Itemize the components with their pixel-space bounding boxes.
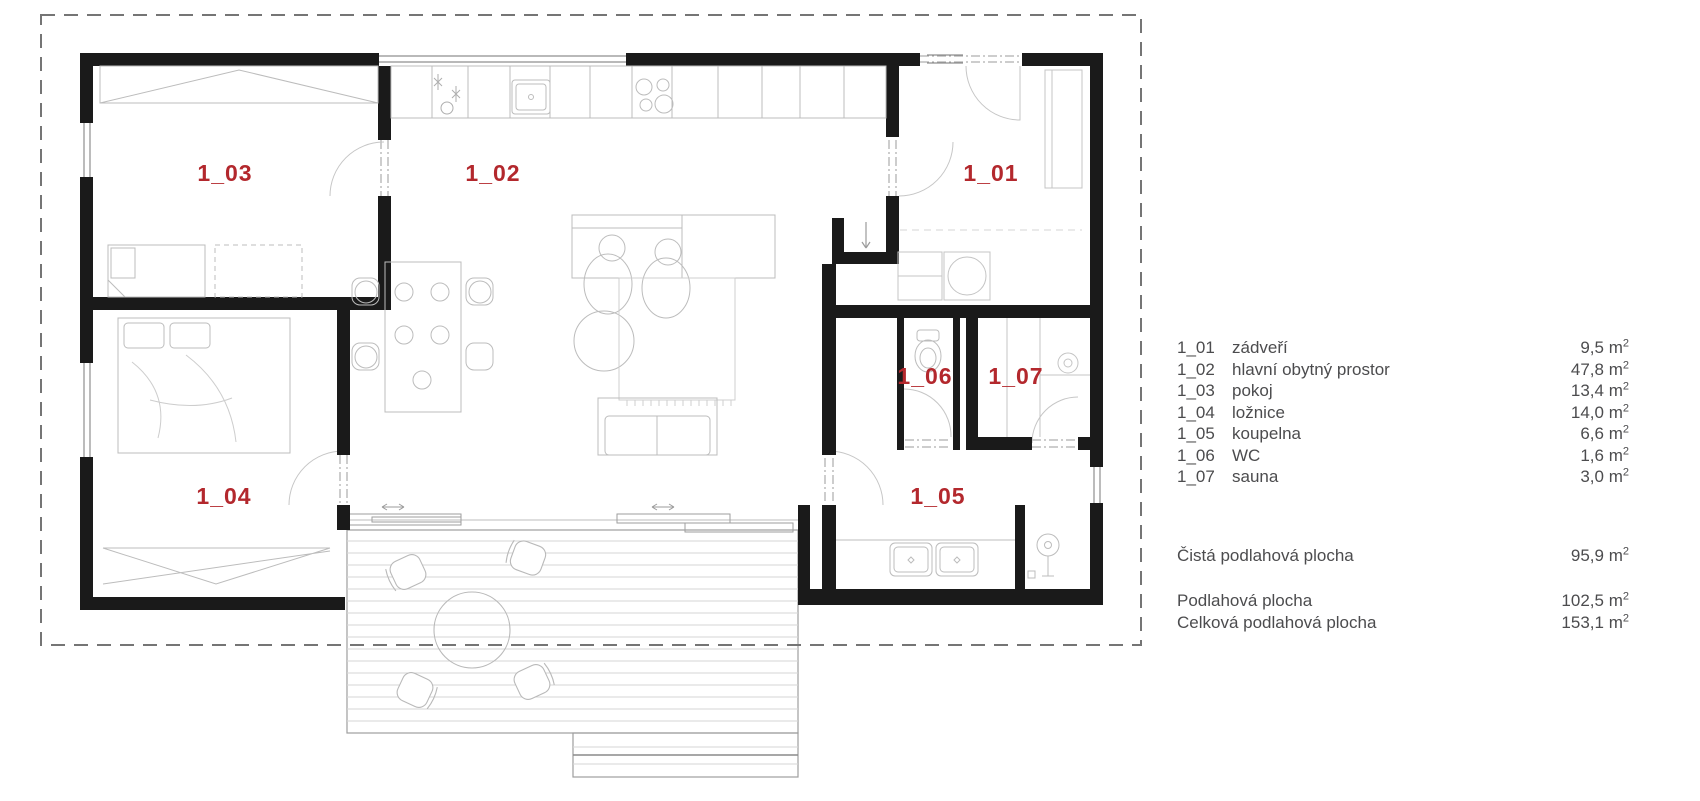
- bathroom-fixtures: [836, 534, 1059, 578]
- room-label-1-06: 1_06: [897, 363, 952, 389]
- room-code: 1_01: [1177, 337, 1232, 359]
- cooktop-icon: [636, 79, 673, 113]
- person-icon: [469, 281, 491, 303]
- washing-machine-icon: [944, 252, 990, 300]
- double-bed-icon: [118, 318, 290, 453]
- room-name: zádveří: [1232, 337, 1580, 359]
- total-value: 153,1 m2: [1561, 612, 1629, 634]
- total-value: 102,5 m2: [1561, 590, 1629, 612]
- sink-icon: [936, 543, 978, 576]
- legend-row: 1_03 pokoj 13,4 m2: [1177, 380, 1629, 402]
- pouf-icon: [574, 311, 634, 371]
- legend-row: 1_01 zádveří 9,5 m2: [1177, 337, 1629, 359]
- hob-icon: [434, 74, 460, 114]
- room-name: pokoj: [1232, 380, 1571, 402]
- total-label: Celková podlahová plocha: [1177, 612, 1561, 634]
- room-code: 1_07: [1177, 466, 1232, 488]
- room-label-1-07: 1_07: [988, 363, 1043, 389]
- legend-row: 1_04 ložnice 14,0 m2: [1177, 402, 1629, 424]
- dining-set-icon: [352, 262, 493, 412]
- person-icon: [584, 235, 632, 314]
- room-area: 13,4 m2: [1571, 380, 1629, 402]
- legend-row: 1_02 hlavní obytný prostor 47,8 m2: [1177, 359, 1629, 381]
- room-label-1-01: 1_01: [963, 160, 1018, 186]
- person-icon: [355, 346, 377, 368]
- room-code: 1_03: [1177, 380, 1232, 402]
- floor-plan-drawing: 1_03 1_02 1_01 1_04 1_05 1_06 1_07: [0, 0, 1160, 801]
- room-code: 1_04: [1177, 402, 1232, 424]
- lounge-icon: [574, 278, 735, 455]
- room-area: 3,0 m2: [1580, 466, 1629, 488]
- total-value: 95,9 m2: [1571, 545, 1629, 567]
- gross-floor-areas: Podlahová plocha 102,5 m2 Celková podlah…: [1177, 590, 1629, 634]
- room-label-1-05: 1_05: [910, 483, 965, 509]
- bed-single-icon: [108, 245, 205, 297]
- room-label-1-04: 1_04: [196, 483, 251, 509]
- kitchen-counter-icon: [391, 66, 886, 118]
- room-area: 9,5 m2: [1580, 337, 1629, 359]
- room-area: 14,0 m2: [1571, 402, 1629, 424]
- slide-direction-arrows: [382, 504, 674, 510]
- nook-arrow-icon: [862, 222, 870, 248]
- room-label-1-03: 1_03: [197, 160, 252, 186]
- total-label: Podlahová plocha: [1177, 590, 1561, 612]
- sofa-icon: [598, 398, 717, 455]
- room-104-furniture: [103, 318, 330, 584]
- sauna-stove-icon: [1058, 353, 1078, 373]
- floor-plan-sheet: 1_03 1_02 1_01 1_04 1_05 1_06 1_07 1_01 …: [0, 0, 1700, 801]
- entry-wardrobe-icon: [1045, 70, 1082, 188]
- sink-icon: [890, 543, 932, 576]
- room-legend: 1_01 zádveří 9,5 m2 1_02 hlavní obytný p…: [1177, 337, 1629, 488]
- wardrobe-icon: [100, 66, 378, 103]
- room-area: 6,6 m2: [1580, 423, 1629, 445]
- walls: [80, 53, 1103, 610]
- legend-row: 1_07 sauna 3,0 m2: [1177, 466, 1629, 488]
- sink-icon: [512, 80, 550, 114]
- room-area: 1,6 m2: [1580, 445, 1629, 467]
- room-label-1-02: 1_02: [465, 160, 520, 186]
- room-name: koupelna: [1232, 423, 1580, 445]
- rug-icon: [619, 278, 735, 406]
- total-label: Čistá podlahová plocha: [1177, 545, 1571, 567]
- bed-single-optional-icon: [215, 245, 302, 297]
- room-name: WC: [1232, 445, 1580, 467]
- legend-row: 1_05 koupelna 6,6 m2: [1177, 423, 1629, 445]
- kitchen-island-icon: [572, 215, 775, 318]
- room-code: 1_05: [1177, 423, 1232, 445]
- closet-icon: [103, 548, 330, 584]
- shower-icon: [1028, 534, 1059, 578]
- room-code: 1_02: [1177, 359, 1232, 381]
- sliding-glass-front: [345, 514, 798, 532]
- room-name: ložnice: [1232, 402, 1571, 424]
- legend-row: 1_06 WC 1,6 m2: [1177, 445, 1629, 467]
- room-code: 1_06: [1177, 445, 1232, 467]
- room-name: hlavní obytný prostor: [1232, 359, 1571, 381]
- laundry-cabinet-icon: [898, 252, 942, 300]
- windows: [84, 55, 1100, 503]
- net-floor-area: Čistá podlahová plocha 95,9 m2: [1177, 545, 1629, 567]
- room-name: sauna: [1232, 466, 1580, 488]
- room-area: 47,8 m2: [1571, 359, 1629, 381]
